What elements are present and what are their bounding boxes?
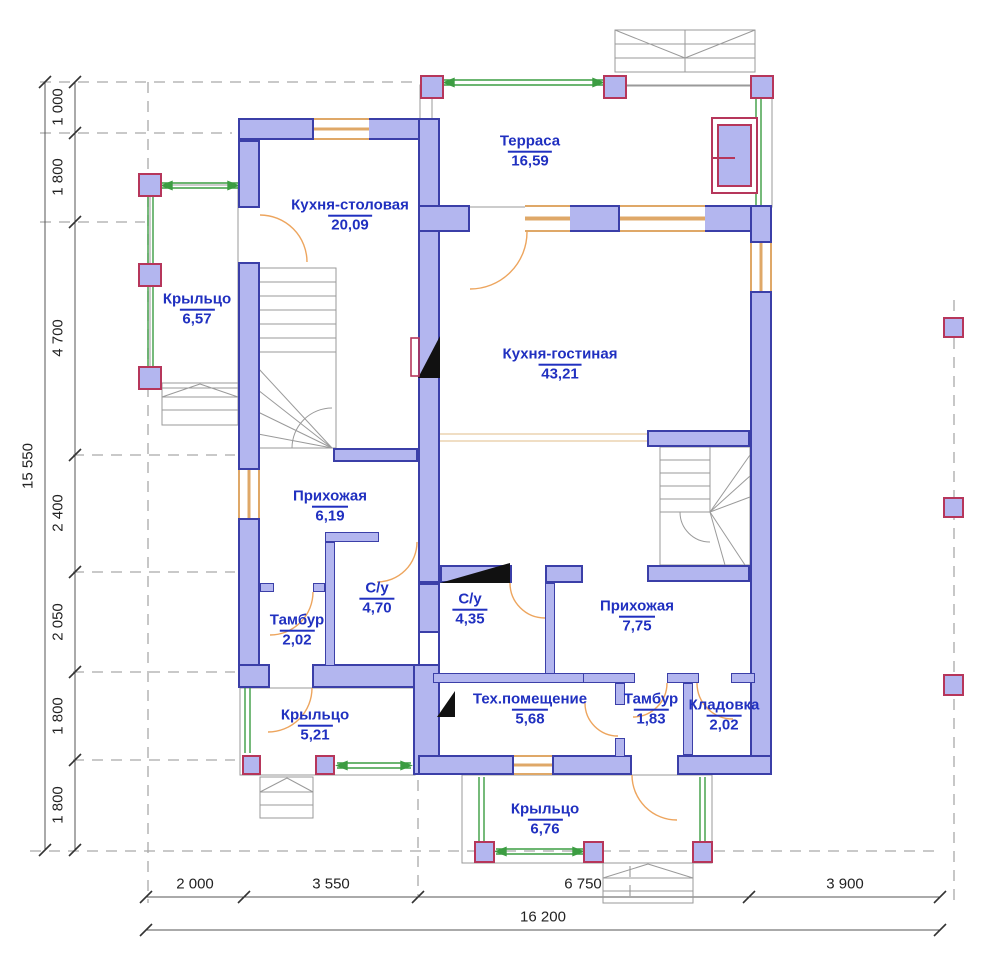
- wall-partition: [325, 532, 379, 542]
- room-area: 1,83: [633, 709, 668, 729]
- column: [474, 841, 495, 863]
- window: [514, 755, 552, 775]
- room-name: Прихожая: [293, 489, 367, 506]
- dim-left-0: 1 000: [50, 88, 67, 126]
- wall: [677, 755, 772, 775]
- column: [943, 317, 964, 338]
- wall-partition: [433, 673, 585, 683]
- column: [315, 755, 335, 775]
- room-name: Терраса: [500, 134, 560, 151]
- wall-partition: [615, 738, 625, 757]
- room-name: Крыльцо: [281, 708, 349, 725]
- room-name: Тех.помещение: [473, 692, 587, 709]
- wall: [238, 118, 314, 140]
- room-label-tech-room: Тех.помещение 5,68: [473, 692, 587, 729]
- dim-left-total: 15 550: [20, 443, 37, 489]
- wall: [238, 664, 270, 688]
- stairs-main: [258, 268, 336, 448]
- wall: [418, 583, 440, 633]
- room-area: 2,02: [706, 715, 741, 735]
- room-area: 16,59: [508, 151, 552, 171]
- wall-partition: [313, 583, 325, 592]
- wall-partition: [731, 673, 755, 683]
- wall-partition: [583, 673, 635, 683]
- stairs-living: [660, 447, 750, 565]
- room-name: Прихожая: [600, 599, 674, 616]
- wall: [418, 205, 470, 232]
- stairs-porch-bottom-left: [260, 777, 313, 818]
- room-name: Крыльцо: [163, 292, 231, 309]
- room-name: Кладовка: [689, 698, 760, 715]
- column: [750, 75, 774, 99]
- room-label-bathroom-2: С/у 4,35: [452, 592, 487, 629]
- dimension-ticks: [39, 76, 946, 936]
- room-name: Тамбур: [624, 692, 678, 709]
- column: [692, 841, 713, 863]
- dim-bottom-1: 3 550: [312, 876, 350, 893]
- window: [238, 470, 260, 518]
- wall: [568, 205, 620, 232]
- room-label-kitchen-living: Кухня-гостиная 43,21: [503, 347, 618, 384]
- dim-bottom-2: 6 750: [564, 876, 602, 893]
- dim-bottom-3: 3 900: [826, 876, 864, 893]
- wall: [545, 565, 583, 583]
- wall-stair-stub: [647, 430, 750, 447]
- dim-left-3: 2 400: [50, 494, 67, 532]
- wall: [238, 518, 260, 668]
- wall-partition: [545, 583, 555, 675]
- stairs-porch-left: [162, 383, 238, 425]
- room-name: Крыльцо: [511, 802, 579, 819]
- column: [138, 173, 162, 197]
- wall-partition: [325, 542, 335, 666]
- room-area: 2,02: [279, 630, 314, 650]
- wall: [312, 664, 418, 688]
- room-label-terrace: Терраса 16,59: [500, 134, 560, 171]
- dim-left-2: 4 700: [50, 319, 67, 357]
- dim-left-6: 1 800: [50, 786, 67, 824]
- room-label-porch-left: Крыльцо 6,57: [163, 292, 231, 329]
- room-name: Кухня-гостиная: [503, 347, 618, 364]
- room-label-vestibule-1: Тамбур 2,02: [270, 613, 324, 650]
- window: [620, 205, 705, 232]
- dim-left-4: 2 050: [50, 603, 67, 641]
- room-area: 4,35: [452, 609, 487, 629]
- room-area: 4,70: [359, 598, 394, 618]
- wall: [418, 755, 514, 775]
- window: [314, 118, 369, 140]
- dim-bottom-total: 16 200: [520, 909, 566, 926]
- room-name: Кухня-столовая: [291, 198, 409, 215]
- wall: [440, 565, 512, 583]
- wall-partition: [667, 673, 699, 683]
- window: [750, 243, 772, 291]
- room-label-hallway-2: Прихожая 7,75: [600, 599, 674, 636]
- room-area: 5,21: [297, 725, 332, 745]
- room-area: 20,09: [328, 215, 372, 235]
- room-area: 43,21: [538, 364, 582, 384]
- room-label-porch-bottom-left: Крыльцо 5,21: [281, 708, 349, 745]
- column: [943, 497, 964, 518]
- room-name: С/у: [452, 592, 487, 609]
- room-name: Тамбур: [270, 613, 324, 630]
- room-label-bathroom-1: С/у 4,70: [359, 581, 394, 618]
- room-name: С/у: [359, 581, 394, 598]
- column: [943, 674, 964, 696]
- dim-left-5: 1 800: [50, 697, 67, 735]
- room-area: 6,76: [527, 819, 562, 839]
- column: [420, 75, 444, 99]
- wall-central: [418, 118, 440, 583]
- wall-opening: [418, 633, 440, 664]
- column: [138, 263, 162, 287]
- wall: [552, 755, 632, 775]
- room-area: 6,57: [179, 309, 214, 329]
- room-area: 6,19: [312, 506, 347, 526]
- room-label-kitchen-dining: Кухня-столовая 20,09: [291, 198, 409, 235]
- room-label-hallway-1: Прихожая 6,19: [293, 489, 367, 526]
- stairs-terrace: [615, 30, 755, 72]
- window: [525, 205, 570, 232]
- column: [242, 755, 261, 775]
- room-area: 5,68: [512, 709, 547, 729]
- dim-left-1: 1 800: [50, 158, 67, 196]
- floor-plan: Терраса 16,59 Кухня-столовая 20,09 Крыль…: [0, 0, 1000, 962]
- wall-partition: [260, 583, 274, 592]
- room-area: 7,75: [619, 616, 654, 636]
- wall: [238, 140, 260, 208]
- wall-partition: [333, 448, 418, 462]
- beam-line: [440, 434, 647, 441]
- wall: [750, 205, 772, 243]
- fireplace-inner: [717, 124, 752, 187]
- room-label-vestibule-2: Тамбур 1,83: [624, 692, 678, 729]
- room-label-porch-bottom: Крыльцо 6,76: [511, 802, 579, 839]
- dim-bottom-0: 2 000: [176, 876, 214, 893]
- column: [583, 841, 604, 863]
- room-label-storage: Кладовка 2,02: [689, 698, 760, 735]
- column: [603, 75, 627, 99]
- column: [138, 366, 162, 390]
- wall-stair-stub: [647, 565, 750, 582]
- wall: [238, 262, 260, 470]
- grid-dashed-lines: [30, 82, 954, 903]
- dimension-lines: [45, 82, 940, 930]
